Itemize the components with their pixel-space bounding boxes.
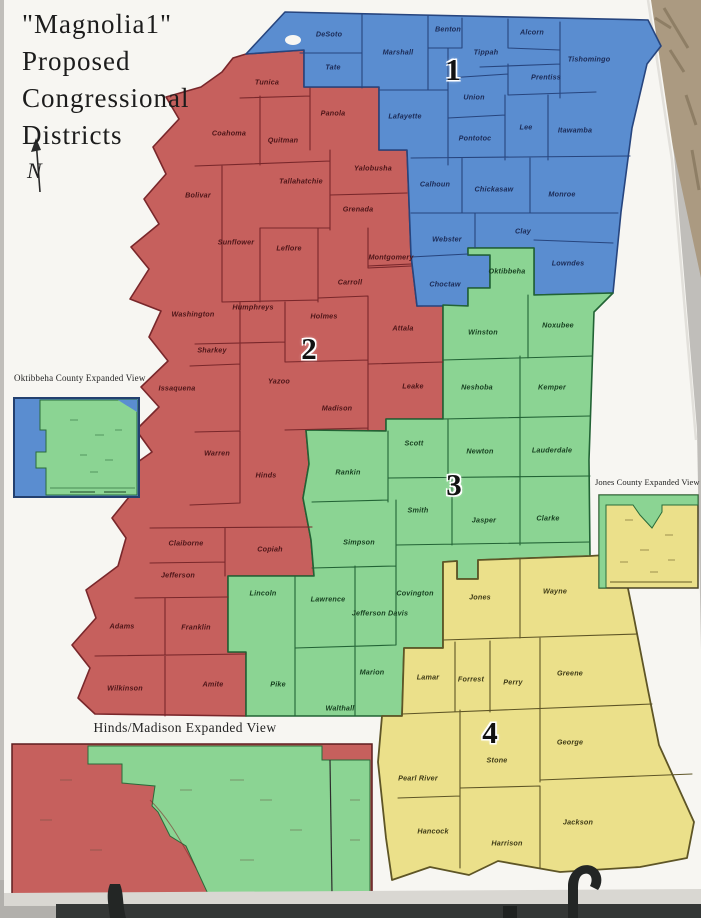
district-number: 3 bbox=[446, 467, 462, 503]
inset-caption-oktibbeha: Oktibbeha County Expanded View bbox=[14, 373, 146, 383]
inset-caption-jones: Jones County Expanded View bbox=[595, 477, 701, 487]
photo-of-district-map-poster: "Magnolia1"ProposedCongressionalDistrict… bbox=[0, 0, 701, 918]
district-number: 1 bbox=[445, 52, 461, 88]
district-number: 4 bbox=[482, 715, 498, 751]
inset-caption-hinds-madison: Hinds/Madison Expanded View bbox=[60, 720, 310, 736]
district-numbers-layer: 1234 bbox=[0, 0, 701, 918]
district-number: 2 bbox=[301, 331, 317, 367]
